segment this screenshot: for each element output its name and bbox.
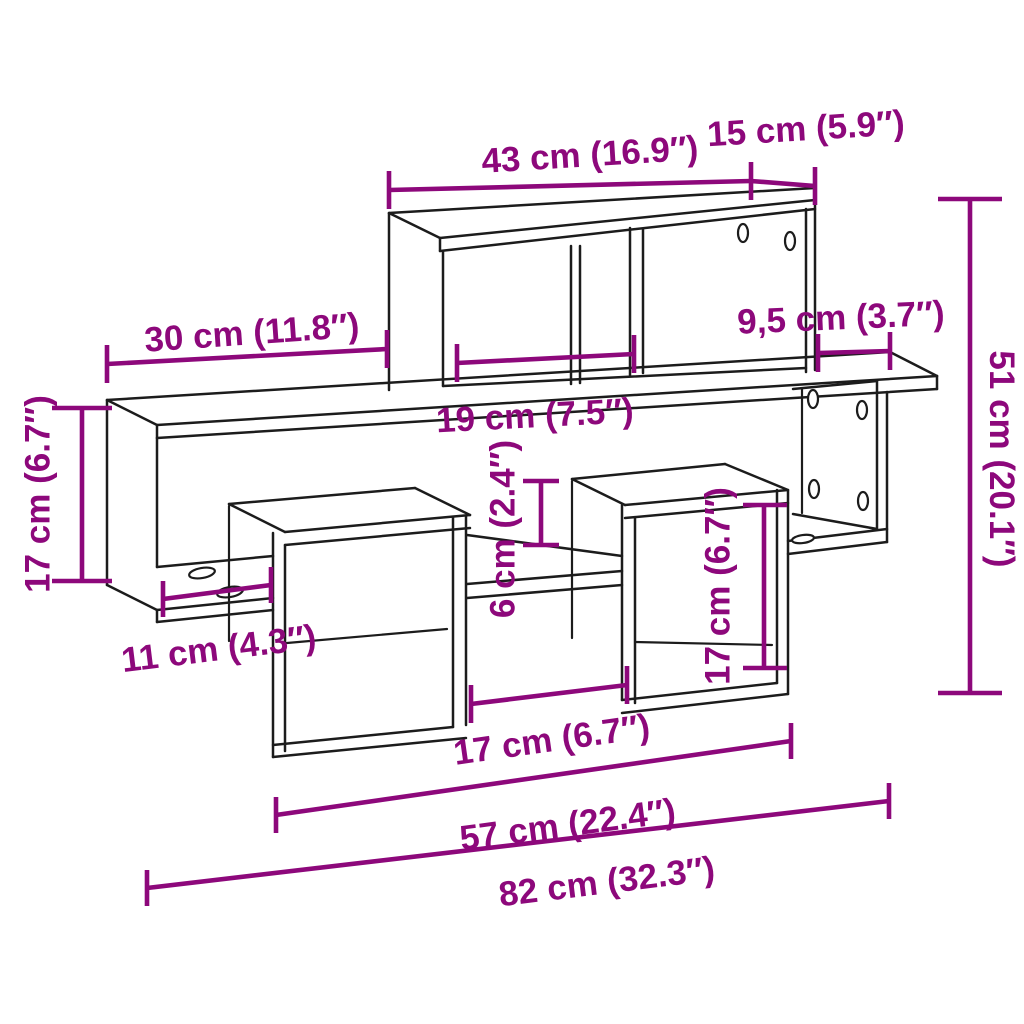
dim-label-17cm-cube: 17 cm (6.7″) [698, 487, 737, 685]
dimension-annotations: 43 cm (16.9″) 15 cm (5.9″) 30 cm (11.8″)… [18, 103, 1021, 914]
dim-middle-compartment: 19 cm (7.5″) [435, 335, 634, 440]
keyhole-icon [808, 390, 818, 408]
keyhole-icon [858, 492, 868, 510]
wall-shelf-dimension-diagram: 43 cm (16.9″) 15 cm (5.9″) 30 cm (11.8″)… [0, 0, 1024, 1024]
dim-label-6cm: 6 cm (2.4″) [483, 440, 522, 618]
dim-label-17cm-left: 17 cm (6.7″) [18, 395, 57, 593]
dim-label-82cm: 82 cm (32.3″) [497, 849, 717, 914]
dim-top-shelf-width: 43 cm (16.9″) [389, 129, 751, 209]
screw-hole-icon [188, 566, 215, 580]
dim-label-43cm: 43 cm (16.9″) [480, 129, 699, 181]
dim-label-15cm: 15 cm (5.9″) [706, 103, 906, 154]
dim-label-11cm: 11 cm (4.3″) [119, 617, 318, 680]
dim-label-17cm-bottom: 17 cm (6.7″) [451, 707, 652, 773]
screw-hole-icon [792, 534, 815, 545]
right-panel-and-board [788, 381, 887, 554]
dim-left-side-height: 17 cm (6.7″) [18, 395, 112, 593]
dim-cube-height: 17 cm (6.7″) [698, 487, 787, 685]
keyhole-icon [785, 232, 795, 250]
dim-label-9-5cm: 9,5 cm (3.7″) [736, 294, 945, 342]
right-cube [572, 464, 788, 713]
keyhole-icon [857, 401, 867, 419]
keyhole-icon [809, 480, 819, 498]
dim-left-shelf-width: 30 cm (11.8″) [107, 306, 387, 383]
dim-label-19cm: 19 cm (7.5″) [435, 391, 634, 440]
keyhole-icon [738, 224, 748, 242]
dim-left-board-width: 11 cm (4.3″) [119, 567, 318, 680]
dim-label-51cm: 51 cm (20.1″) [982, 350, 1021, 567]
dim-total-height: 51 cm (20.1″) [938, 199, 1021, 693]
diagram-canvas: 43 cm (16.9″) 15 cm (5.9″) 30 cm (11.8″)… [0, 0, 1024, 1024]
